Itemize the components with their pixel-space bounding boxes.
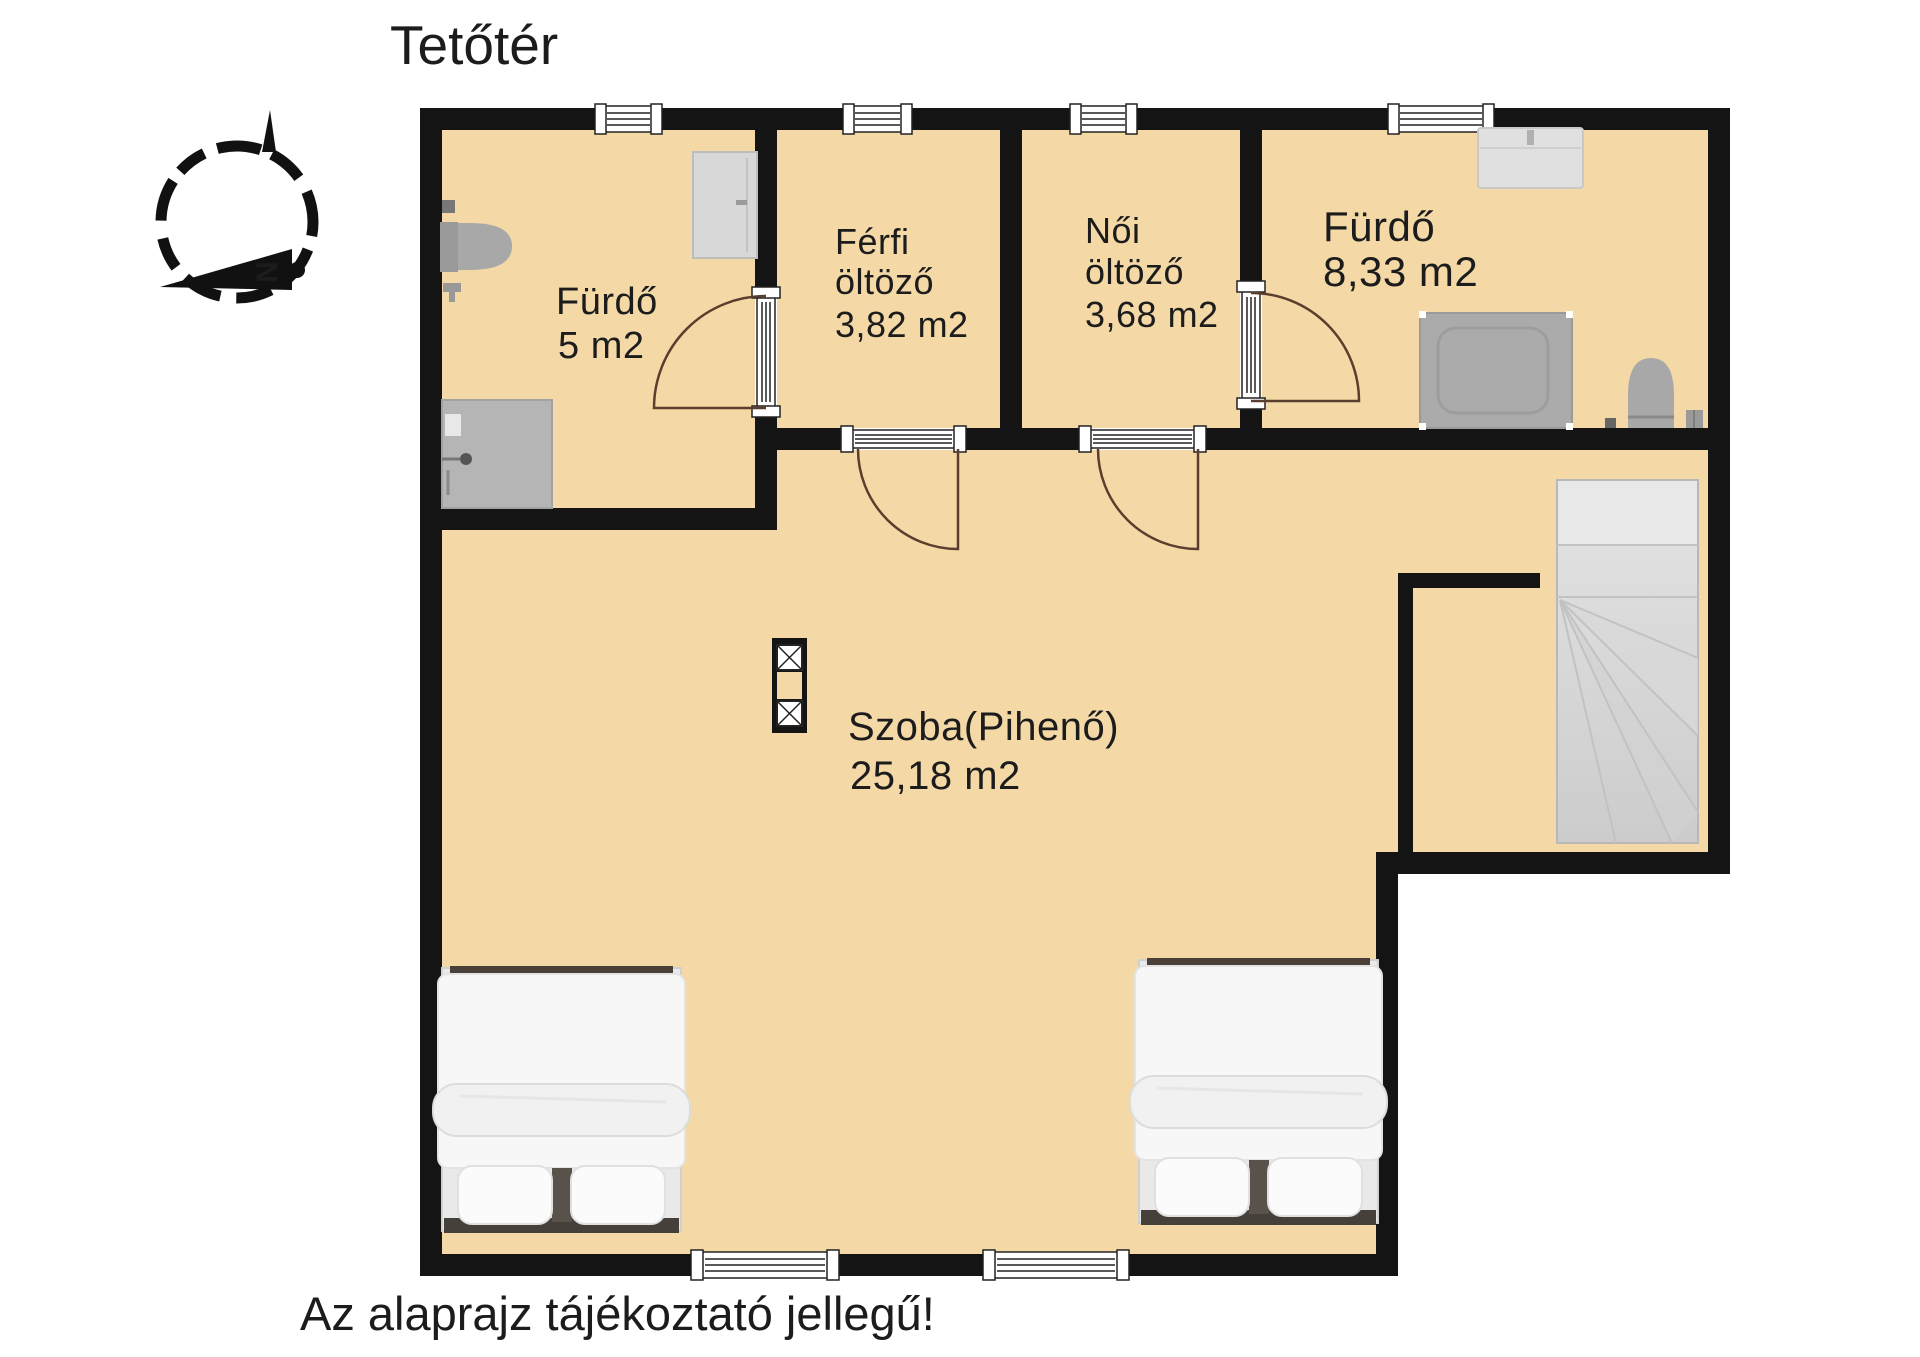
window-dressing-women: [1070, 104, 1137, 134]
towel-rail: [443, 283, 461, 292]
label-dressing-men-area: 3,82 m2: [835, 304, 969, 345]
bed-right: [1130, 958, 1387, 1225]
wall-divider-a-lower: [755, 412, 777, 530]
wall-dressing-bottom-1: [777, 428, 845, 450]
wall-dressing-bottom-3: [1202, 428, 1730, 450]
door-dressing-women: [1079, 426, 1206, 452]
window-main-left: [691, 1250, 839, 1280]
shower-tray: [1419, 311, 1573, 430]
label-bath-small-name: Fürdő: [556, 281, 658, 323]
wall-bath-small-bottom: [420, 508, 777, 530]
wall-bottom: [420, 1254, 1398, 1276]
toilet-small-tank: [440, 222, 458, 272]
window-bath-small: [595, 104, 662, 134]
label-dressing-women-area: 3,68 m2: [1085, 294, 1219, 335]
label-main-room-area: 25,18 m2: [850, 754, 1021, 798]
window-main-right: [983, 1250, 1129, 1280]
wall-divider-b: [1000, 130, 1022, 450]
floor-plan-canvas: Tetőtér Az alaprajz tájékoztató jellegű!…: [0, 0, 1920, 1357]
towel-rail-stem: [449, 292, 455, 302]
staircase: [1557, 480, 1698, 843]
wall-stair-guard-h: [1398, 573, 1540, 588]
door-bath-large: [1237, 281, 1265, 409]
compass-north-label: N: [251, 261, 284, 283]
wall-stair-guard-v: [1398, 573, 1413, 852]
wall-dressing-bottom-2: [962, 428, 1083, 450]
toilet-brush: [1686, 410, 1703, 428]
label-dressing-women-name: Női: [1085, 210, 1141, 251]
shower-enclosure: [442, 400, 552, 508]
wall-step: [1376, 852, 1730, 874]
label-bath-large-area: 8,33 m2: [1323, 248, 1478, 295]
label-bath-small-area: 5 m2: [558, 325, 644, 367]
label-bath-large-name: Fürdő: [1323, 203, 1435, 250]
wall-divider-c-lower: [1240, 407, 1262, 450]
wall-right-outer: [1708, 108, 1730, 874]
compass-pivot: [289, 262, 305, 278]
wall-item-small: [442, 200, 455, 213]
label-dressing-men-type: öltöző: [835, 261, 934, 302]
washbasin-large: [1478, 128, 1583, 188]
label-dressing-women-type: öltöző: [1085, 251, 1184, 292]
floor-plan-page: Tetőtér Az alaprajz tájékoztató jellegű!…: [0, 0, 1920, 1357]
window-dressing-men: [843, 104, 912, 134]
washbasin-cabinet: [693, 152, 757, 258]
chimney: [772, 638, 807, 733]
bed-left: [433, 966, 690, 1233]
wall-divider-a-upper: [755, 130, 777, 292]
compass-tick: [262, 110, 276, 152]
label-dressing-men-name: Férfi: [835, 221, 910, 262]
label-main-room-name: Szoba(Pihenő): [848, 705, 1119, 749]
compass-rose: N: [147, 110, 327, 312]
door-dressing-men: [841, 426, 966, 452]
door-bath-small: [752, 287, 780, 417]
disclaimer-text: Az alaprajz tájékoztató jellegű!: [300, 1287, 935, 1340]
toilet-large: [1628, 358, 1674, 428]
floor-drain: [1605, 418, 1616, 428]
wall-divider-c-upper: [1240, 130, 1262, 283]
page-title: Tetőtér: [390, 14, 558, 76]
